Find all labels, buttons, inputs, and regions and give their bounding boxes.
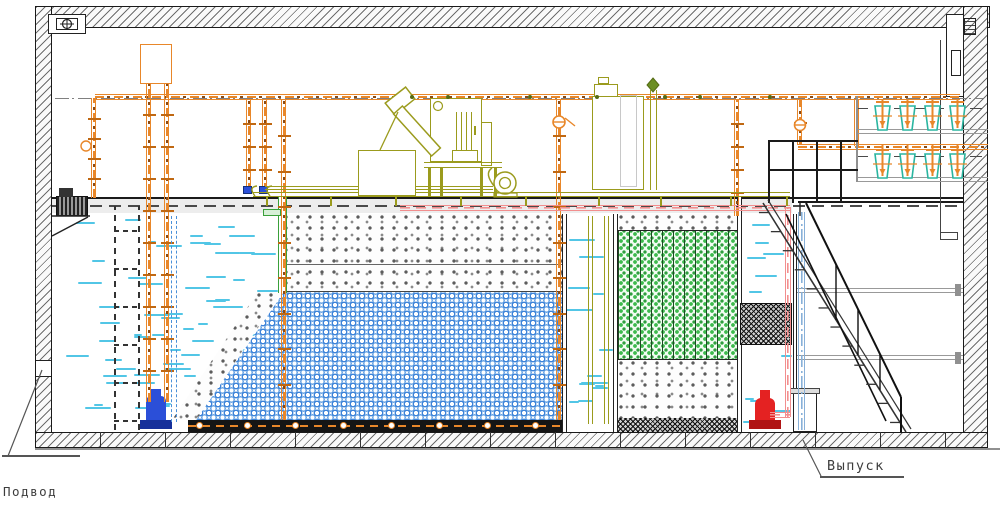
floor-joint [230, 432, 231, 448]
walkway-post [460, 196, 462, 206]
walkway-post [660, 196, 662, 206]
floor-joint [750, 432, 751, 448]
walkway-post [395, 196, 397, 206]
inlet-label: Подвод сточных вод на очистку [3, 459, 66, 512]
inlet-label-shelf [2, 455, 80, 457]
floor-joint [815, 432, 816, 448]
walkway-post [525, 196, 527, 206]
service-ladder-rung [114, 344, 140, 346]
floor-joint [100, 432, 101, 448]
service-ladder-rung [114, 306, 140, 308]
floor-joint [945, 432, 946, 448]
inlet-label-line: Подвод [3, 485, 66, 498]
walkway-post [730, 196, 732, 206]
floor-joint [620, 432, 621, 448]
walkway-post [786, 196, 788, 206]
floor-joint [685, 432, 686, 448]
floor-joint [555, 432, 556, 448]
floor-joint [880, 432, 881, 448]
plant-section-drawing: Подвод сточных вод на очистку Выпуск [0, 0, 1000, 512]
outlet-label: Выпуск [827, 460, 885, 473]
service-ladder-rung [114, 230, 140, 232]
walkway-post [598, 196, 600, 206]
floor-joint [425, 432, 426, 448]
floor-joint [360, 432, 361, 448]
service-ladder-rung [114, 420, 140, 422]
drawing-overlay [0, 0, 1000, 512]
service-ladder-rung [114, 382, 140, 384]
service-ladder-rung [114, 268, 140, 270]
walkway-post [330, 196, 332, 206]
outlet-label-shelf [820, 476, 904, 478]
walkway-post [266, 196, 268, 206]
floor-joint [295, 432, 296, 448]
floor-joint [490, 432, 491, 448]
floor-joint [165, 432, 166, 448]
